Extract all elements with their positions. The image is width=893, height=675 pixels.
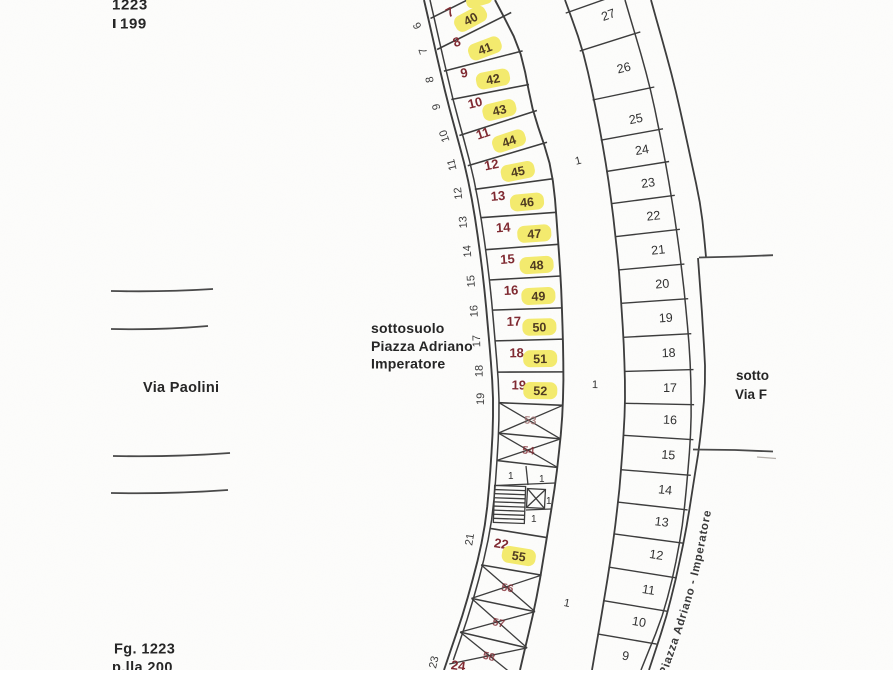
svg-text:15: 15	[500, 251, 515, 267]
svg-text:Imperatore: Imperatore	[371, 356, 445, 372]
svg-text:1223: 1223	[112, 0, 148, 14]
svg-text:56: 56	[500, 581, 514, 595]
svg-text:22: 22	[646, 208, 661, 224]
svg-text:11: 11	[641, 582, 656, 598]
svg-text:16: 16	[503, 282, 518, 298]
svg-text:25: 25	[628, 111, 644, 127]
svg-text:12: 12	[648, 547, 664, 563]
svg-text:14: 14	[461, 245, 474, 258]
svg-text:18: 18	[509, 345, 524, 360]
svg-text:19: 19	[658, 311, 673, 326]
svg-text:53: 53	[524, 415, 537, 428]
svg-text:199: 199	[120, 16, 147, 33]
svg-text:1: 1	[592, 379, 598, 391]
svg-text:21: 21	[463, 533, 477, 547]
svg-text:52: 52	[533, 384, 547, 398]
svg-text:45: 45	[510, 164, 526, 180]
svg-text:1: 1	[546, 496, 552, 507]
svg-text:13: 13	[457, 216, 470, 229]
svg-text:16: 16	[468, 305, 480, 318]
svg-text:13: 13	[654, 514, 670, 530]
svg-text:1: 1	[531, 514, 537, 525]
svg-text:54: 54	[522, 444, 536, 457]
svg-text:p.lla 200: p.lla 200	[112, 660, 173, 670]
svg-text:1: 1	[508, 471, 514, 482]
svg-text:21: 21	[651, 242, 666, 257]
svg-text:49: 49	[531, 289, 546, 304]
svg-text:13: 13	[490, 188, 506, 204]
svg-text:42: 42	[485, 71, 501, 87]
svg-text:15: 15	[661, 448, 676, 463]
svg-text:1: 1	[539, 474, 545, 485]
svg-text:46: 46	[519, 195, 534, 210]
svg-text:sotto: sotto	[736, 368, 769, 383]
svg-text:17: 17	[663, 381, 677, 395]
svg-text:51: 51	[533, 352, 547, 366]
svg-text:12: 12	[452, 187, 465, 200]
svg-text:20: 20	[655, 277, 670, 292]
svg-text:14: 14	[658, 482, 673, 497]
svg-text:12: 12	[483, 156, 500, 174]
svg-text:Via F: Via F	[735, 387, 767, 402]
svg-text:10: 10	[631, 614, 647, 630]
svg-text:sottosuolo: sottosuolo	[371, 320, 445, 336]
svg-text:55: 55	[511, 548, 527, 564]
svg-text:24: 24	[634, 142, 650, 158]
svg-text:Fg. 1223: Fg. 1223	[114, 642, 175, 658]
svg-text:19: 19	[475, 393, 487, 406]
svg-text:18: 18	[474, 365, 486, 377]
svg-text:24: 24	[450, 657, 467, 670]
svg-text:Via Paolini: Via Paolini	[143, 380, 219, 396]
svg-text:16: 16	[663, 413, 678, 428]
svg-text:50: 50	[532, 320, 546, 334]
svg-text:14: 14	[495, 219, 511, 235]
svg-text:15: 15	[465, 275, 478, 288]
svg-text:48: 48	[529, 258, 544, 273]
svg-text:23: 23	[640, 175, 656, 191]
svg-text:18: 18	[661, 346, 676, 361]
svg-text:17: 17	[506, 314, 521, 329]
svg-text:Piazza Adriano: Piazza Adriano	[371, 338, 473, 354]
svg-text:47: 47	[527, 227, 542, 242]
